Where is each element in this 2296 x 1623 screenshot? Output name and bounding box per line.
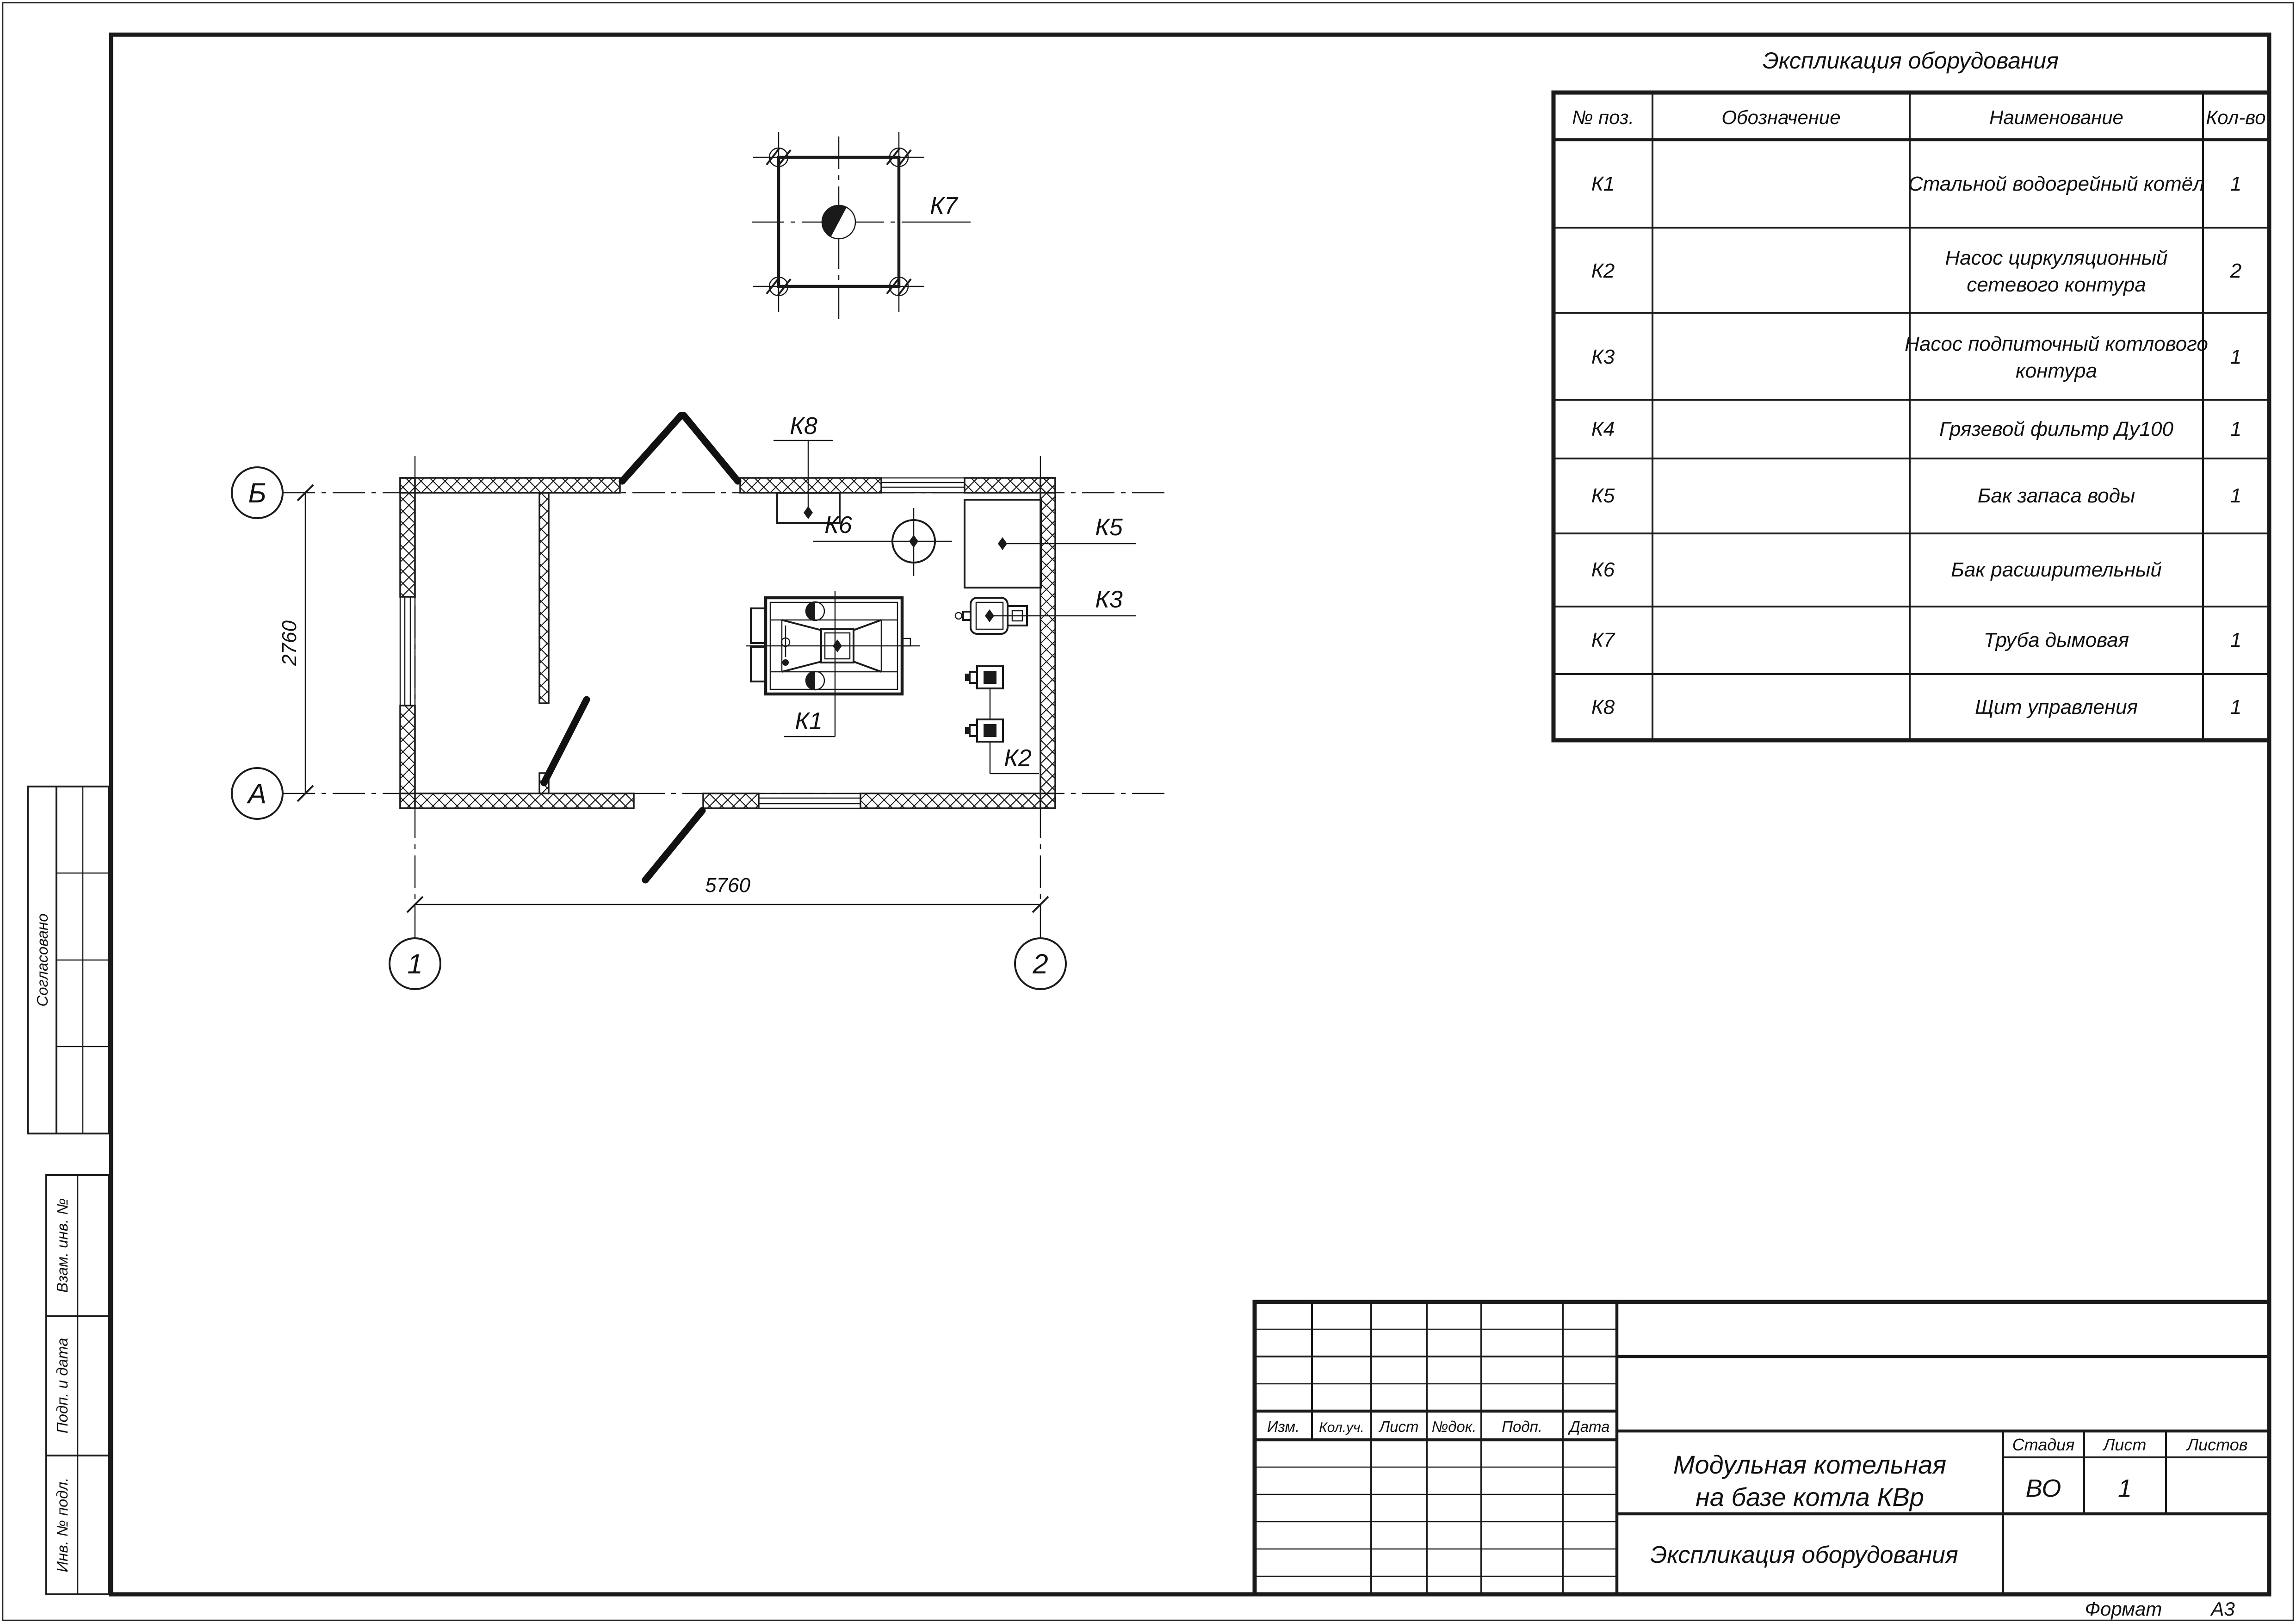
k2-pump-port [965, 727, 970, 734]
project-title-line2: на базе котла КВр [1696, 1482, 1924, 1511]
tb-col-izm: Изм. [1267, 1418, 1300, 1435]
k1-diagonal [854, 620, 881, 630]
wall-top-1 [400, 478, 620, 493]
table-row: К2 Насос циркуляционный сетевого контура… [1591, 247, 2241, 296]
door-leaf-bottom [645, 811, 702, 880]
window-opening [881, 478, 965, 493]
boiler-k1: К1 [746, 591, 920, 737]
col-header-pos: № поз. [1572, 106, 1634, 128]
floor-plan: Б А 1 2 2760 5760 [232, 132, 1170, 989]
approved-label: Согласовано [34, 913, 51, 1006]
k2-pump-flange [970, 672, 977, 683]
sheet-value: 1 [2118, 1474, 2132, 1502]
chimney-detail-k7: К7 [752, 132, 971, 324]
k1-marker-diamond [833, 639, 842, 652]
k1-diagonal [854, 662, 881, 672]
wall-bottom-2 [703, 793, 759, 808]
dim-text-2760: 2760 [278, 620, 301, 666]
callout-k3: К3 [1095, 586, 1123, 613]
col-header-qty: Кол-во [2206, 106, 2265, 128]
row-name: Грязевой фильтр Ду100 [1939, 418, 2174, 440]
wall-bottom-1 [400, 793, 634, 808]
k1-side-block [751, 647, 766, 681]
table-row: К5 Бак запаса воды 1 [1591, 484, 2241, 507]
window-top [881, 478, 965, 493]
row-name: Щит управления [1975, 696, 2138, 719]
k7-anchor-mark [873, 132, 924, 183]
row-pos: К3 [1591, 346, 1615, 368]
row-qty: 1 [2230, 629, 2241, 651]
pumps-k2: К2 [965, 666, 1039, 774]
tb-col-podp: Подп. [1502, 1418, 1542, 1435]
k2-pump-flange [970, 725, 977, 736]
wall-top-2 [740, 478, 881, 493]
door-leaf-top-right [684, 415, 738, 481]
wall-right [1040, 478, 1055, 808]
inv-orig-label: Инв. № подл. [54, 1478, 71, 1573]
k3-pump-port-end [955, 613, 962, 619]
margin-stamps: Согласовано Взам. инв. № Подп. и дата Ин… [28, 787, 109, 1594]
k2-pump [965, 719, 1003, 742]
tb-col-dok: №док. [1431, 1418, 1476, 1435]
window-opening [759, 793, 860, 808]
control-panel-k8: К8 [774, 413, 840, 523]
sign-date-stamp: Подп. и дата [46, 1316, 109, 1456]
row-name: Бак расширительный [1951, 558, 2162, 581]
axis-label-A: А [247, 778, 266, 809]
spec-table-title: Экспликация оборудования [1763, 48, 2059, 74]
row-pos: К7 [1591, 629, 1615, 651]
callout-k6: К6 [824, 512, 852, 539]
col-header-designation: Обозначение [1721, 106, 1840, 128]
sign-date-label: Подп. и дата [54, 1338, 71, 1434]
row-pos: К1 [1591, 173, 1615, 195]
door-leaf-top-left [622, 415, 681, 481]
row-qty: 2 [2230, 260, 2241, 282]
window-opening [400, 597, 415, 706]
tb-col-koluch: Кол.уч. [1319, 1420, 1364, 1435]
inv-orig-stamp: Инв. № подл. [46, 1456, 109, 1594]
callout-k8: К8 [790, 413, 817, 440]
sheet-label: Лист [2103, 1435, 2147, 1454]
blueprint-canvas: Экспликация оборудования № поз. Обозначе… [0, 0, 2296, 1623]
axis-label-B: Б [248, 477, 266, 508]
expansion-tank-k6: К6 [813, 508, 952, 576]
k1-hatch-circle-half [806, 602, 815, 620]
drawing-sheet: Экспликация оборудования № поз. Обозначе… [0, 0, 2296, 1623]
k3-pump-port [963, 612, 971, 620]
format-label: Формат [2085, 1598, 2162, 1620]
row-qty: 1 [2230, 696, 2241, 719]
wall-bottom-3 [860, 793, 1055, 808]
callout-k1: К1 [795, 708, 823, 735]
tb-col-list: Лист [1379, 1418, 1419, 1435]
k1-fitting [782, 659, 789, 666]
window-left [400, 597, 415, 706]
row-name-line2: контура [2016, 359, 2097, 382]
k1-side-block [751, 608, 766, 643]
k6-marker-diamond [909, 535, 918, 548]
dimension-height: 2760 [278, 485, 313, 801]
sheets-label: Листов [2186, 1435, 2247, 1454]
k2-pump-motor [984, 724, 996, 737]
axis-label-1: 1 [407, 948, 422, 979]
k2-pump [965, 666, 1003, 688]
row-pos: К2 [1591, 260, 1615, 282]
callout-k2: К2 [1004, 745, 1032, 772]
stage-label: Стадия [2012, 1435, 2075, 1454]
approved-stamp: Согласовано [28, 787, 109, 1134]
k1-hatch-circle-half [806, 671, 815, 690]
row-name: Насос циркуляционный [1945, 247, 2167, 269]
callout-k7: К7 [930, 192, 959, 219]
stage-value: ВО [2026, 1474, 2061, 1502]
table-row: К3 Насос подпиточный котлового контура 1 [1591, 333, 2241, 382]
door-leaf-interior [544, 700, 587, 783]
title-block: Изм. Кол.уч. Лист №док. Подп. Дата Модул… [1255, 1302, 2269, 1620]
k7-anchor-mark [753, 132, 804, 183]
repl-inv-stamp: Взам. инв. № [46, 1175, 109, 1316]
table-row: К7 Труба дымовая 1 [1591, 629, 2241, 651]
wall-left-1 [400, 478, 415, 597]
sheet-outer-border [3, 3, 2293, 1620]
format-value: А3 [2209, 1598, 2234, 1620]
tb-col-data: Дата [1567, 1418, 1609, 1435]
project-title-line1: Модульная котельная [1673, 1450, 1946, 1479]
row-qty: 1 [2230, 346, 2241, 368]
window-bottom [759, 793, 860, 808]
row-name-line2: сетевого контура [1967, 273, 2146, 296]
k7-anchor-mark [873, 261, 924, 312]
spec-table: Экспликация оборудования № поз. Обозначе… [1553, 48, 2269, 740]
row-pos: К5 [1591, 484, 1615, 507]
dimension-width: 5760 [407, 874, 1048, 912]
row-qty: 1 [2230, 484, 2241, 507]
dim-text-5760: 5760 [705, 874, 750, 897]
partition-wall [539, 493, 549, 703]
doc-title: Экспликация оборудования [1650, 1542, 1958, 1568]
k2-pump-motor [984, 671, 996, 684]
row-qty: 1 [2230, 173, 2241, 195]
callout-k5: К5 [1095, 514, 1123, 541]
k7-anchor-mark [753, 261, 804, 312]
row-qty: 1 [2230, 418, 2241, 440]
table-row: К1 Стальной водогрейный котёл 1 [1591, 173, 2241, 195]
row-name: Стальной водогрейный котёл [1908, 173, 2204, 195]
row-name: Бак запаса воды [1978, 484, 2135, 507]
row-pos: К8 [1591, 696, 1615, 719]
walls [400, 478, 1055, 808]
row-name: Труба дымовая [1984, 629, 2129, 651]
axis-label-2: 2 [1032, 948, 1048, 979]
k1-diagonal [782, 620, 821, 630]
row-pos: К4 [1591, 418, 1615, 440]
table-row: К8 Щит управления 1 [1591, 696, 2241, 719]
row-pos: К6 [1591, 558, 1615, 581]
col-header-name: Наименование [1989, 106, 2123, 128]
repl-inv-label: Взам. инв. № [54, 1198, 71, 1293]
table-row: К4 Грязевой фильтр Ду100 1 [1591, 418, 2241, 440]
k2-pump-port [965, 674, 970, 681]
row-name: Насос подпиточный котлового [1905, 333, 2208, 355]
table-row: К6 Бак расширительный [1591, 558, 2162, 581]
